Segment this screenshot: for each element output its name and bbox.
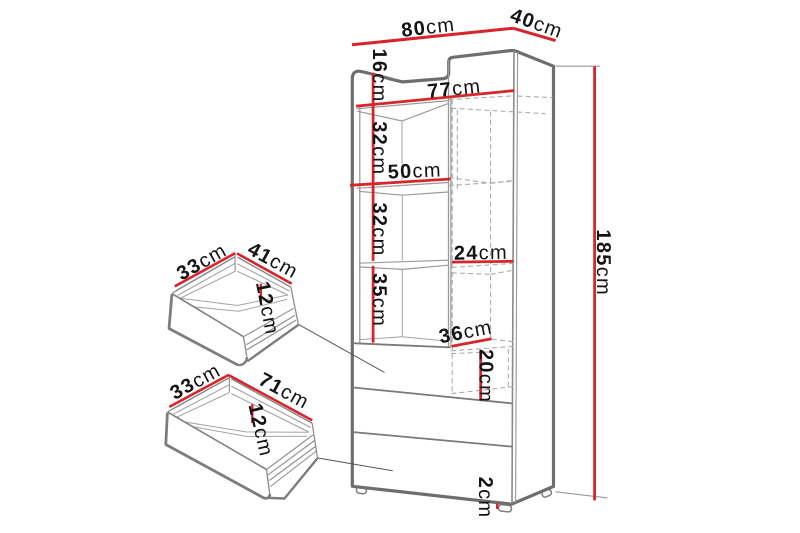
svg-text:32cm: 32cm bbox=[368, 202, 390, 256]
svg-text:16cm: 16cm bbox=[368, 48, 390, 102]
svg-text:24cm: 24cm bbox=[454, 242, 509, 265]
svg-text:50cm: 50cm bbox=[387, 159, 442, 183]
svg-text:20cm: 20cm bbox=[475, 349, 497, 403]
svg-text:185cm: 185cm bbox=[592, 229, 614, 296]
svg-text:2cm: 2cm bbox=[474, 477, 496, 519]
svg-text:35cm: 35cm bbox=[368, 273, 390, 327]
